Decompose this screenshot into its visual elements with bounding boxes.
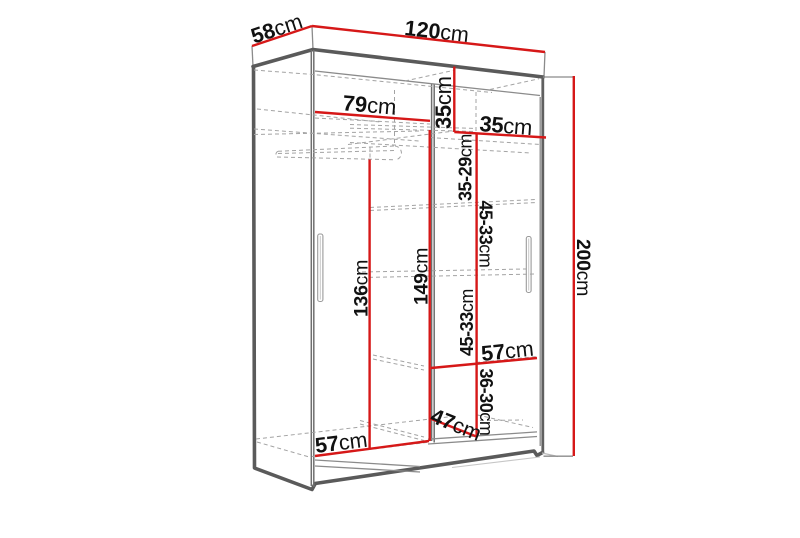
svg-text:149cm: 149cm: [410, 248, 432, 305]
svg-text:79cm: 79cm: [342, 90, 398, 119]
svg-text:35cm: 35cm: [431, 76, 456, 129]
svg-text:35-29cm: 35-29cm: [456, 134, 476, 201]
svg-text:35cm: 35cm: [479, 111, 533, 140]
svg-text:45-33cm: 45-33cm: [476, 201, 496, 268]
svg-text:136cm: 136cm: [350, 260, 372, 317]
svg-text:45-33cm: 45-33cm: [457, 289, 477, 356]
svg-text:200cm: 200cm: [572, 239, 594, 296]
